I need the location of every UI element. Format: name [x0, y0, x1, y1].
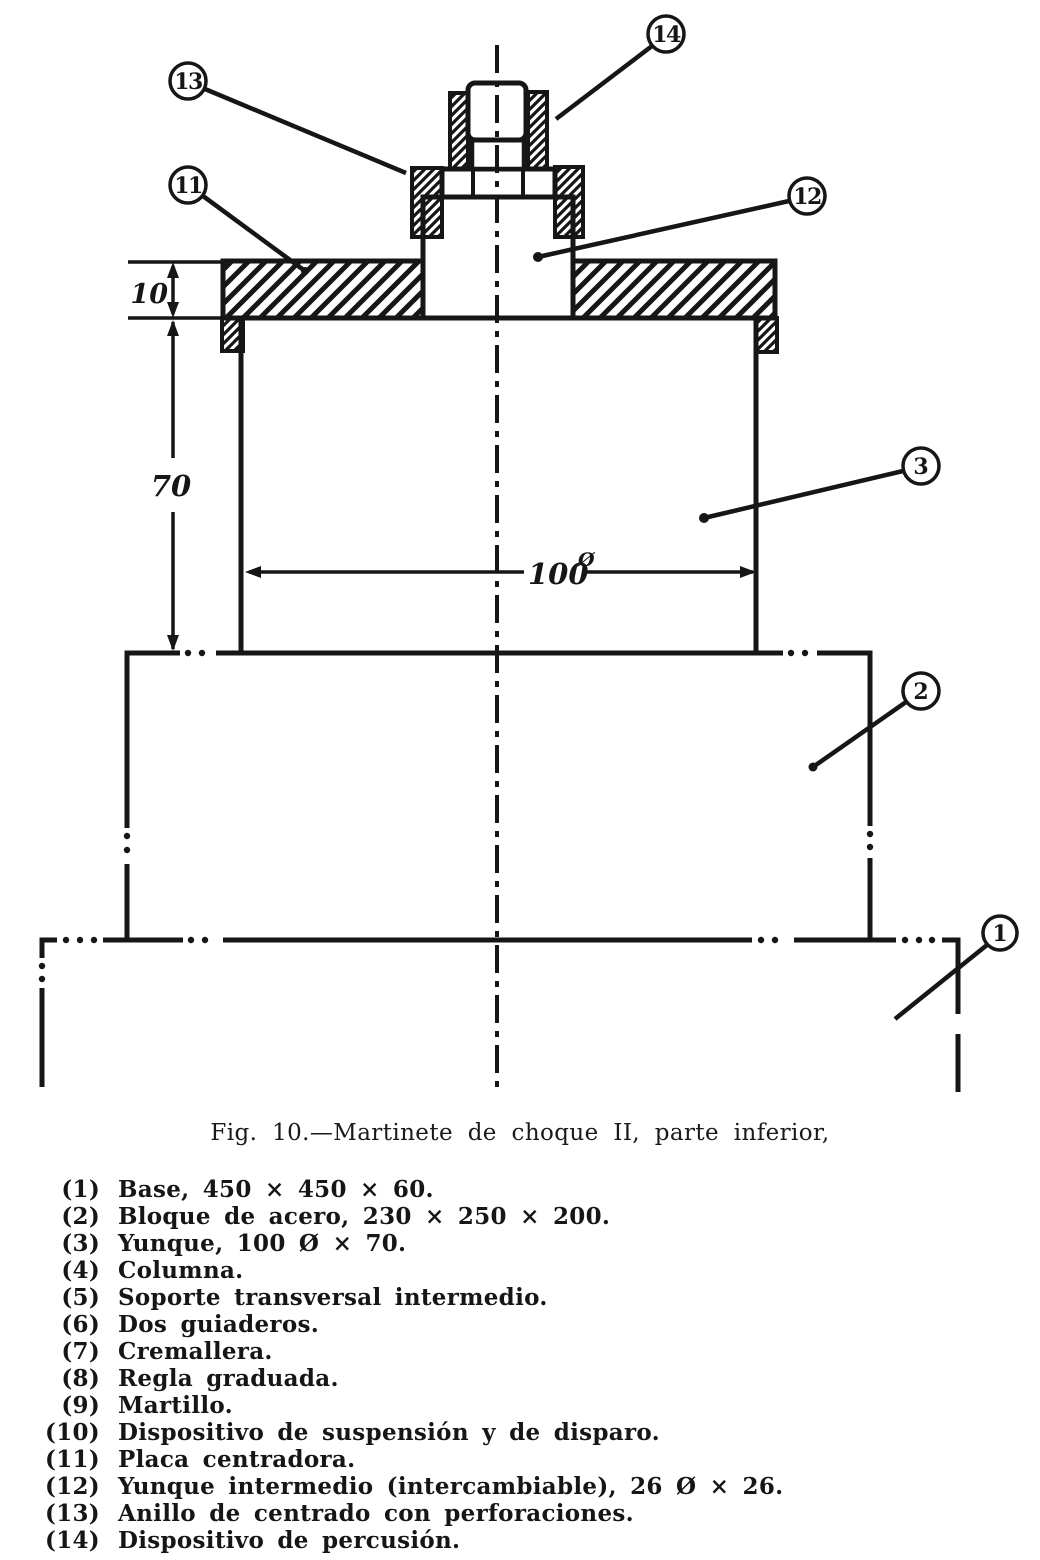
- part-label: Yunque, 100 Ø × 70.: [118, 1230, 406, 1257]
- parts-list-item: (9)Martillo.: [42, 1392, 1040, 1419]
- parts-list-item: (3)Yunque, 100 Ø × 70.: [42, 1230, 1040, 1257]
- parts-list-item: (12)Yunque intermedio (intercambiable), …: [42, 1473, 1040, 1500]
- parts-list-item: (6)Dos guiaderos.: [42, 1311, 1040, 1338]
- part-label: Bloque de acero, 230 × 250 × 200.: [118, 1203, 610, 1230]
- part-label: Yunque intermedio (intercambiable), 26 Ø…: [118, 1473, 783, 1500]
- part-number: (1): [42, 1176, 100, 1203]
- parts-list-item: (14)Dispositivo de percusión.: [42, 1527, 1040, 1554]
- parts-list-item: (4)Columna.: [42, 1257, 1040, 1284]
- part-number: (8): [42, 1365, 100, 1392]
- parts-list-item: (8)Regla graduada.: [42, 1365, 1040, 1392]
- dimension-70-label: 70: [151, 469, 191, 503]
- callout-13: 13: [170, 63, 406, 173]
- part-label: Regla graduada.: [118, 1365, 339, 1392]
- dimension-10-label: 10: [130, 279, 168, 310]
- callout-1-number: 1: [992, 921, 1007, 947]
- part-number: (5): [42, 1284, 100, 1311]
- parts-list-item: (11)Placa centradora.: [42, 1446, 1040, 1473]
- part-label: Dos guiaderos.: [118, 1311, 319, 1338]
- parts-list-item: (1)Base, 450 × 450 × 60.: [42, 1176, 1040, 1203]
- part-label: Dispositivo de suspensión y de disparo.: [118, 1419, 660, 1446]
- part-label: Placa centradora.: [118, 1446, 355, 1473]
- part-number: (3): [42, 1230, 100, 1257]
- part-label: Martillo.: [118, 1392, 233, 1419]
- parts-list-item: (13)Anillo de centrado con perforaciones…: [42, 1500, 1040, 1527]
- parts-list-item: (5)Soporte transversal intermedio.: [42, 1284, 1040, 1311]
- parts-list-item: (2)Bloque de acero, 230 × 250 × 200.: [42, 1203, 1040, 1230]
- parts-list-item: (10)Dispositivo de suspensión y de dispa…: [42, 1419, 1040, 1446]
- part-label: Cremallera.: [118, 1338, 273, 1365]
- callout-11-number: 11: [174, 173, 202, 199]
- callout-13-number: 13: [174, 69, 202, 95]
- part-label: Dispositivo de percusión.: [118, 1527, 460, 1554]
- dimension-anvil-height: 70: [151, 320, 191, 651]
- part-number: (10): [42, 1419, 100, 1446]
- part-number: (12): [42, 1473, 100, 1500]
- parts-list: (1)Base, 450 × 450 × 60. (2)Bloque de ac…: [0, 1176, 1040, 1554]
- part-number: (9): [42, 1392, 100, 1419]
- parts-list-item: (7)Cremallera.: [42, 1338, 1040, 1365]
- callout-3-number: 3: [913, 454, 928, 480]
- part-number: (13): [42, 1500, 100, 1527]
- part-number: (7): [42, 1338, 100, 1365]
- part-label: Anillo de centrado con perforaciones.: [118, 1500, 634, 1527]
- callout-2-number: 2: [913, 679, 928, 705]
- part-label: Base, 450 × 450 × 60.: [118, 1176, 434, 1203]
- base-shape: [42, 940, 958, 1092]
- part-number: (4): [42, 1257, 100, 1284]
- figure-drawing: 10 70 100 Ø 14 13: [0, 0, 1040, 1100]
- part-number: (6): [42, 1311, 100, 1338]
- callout-14: 14: [556, 16, 684, 119]
- part-label: Columna.: [118, 1257, 243, 1284]
- part-number: (11): [42, 1446, 100, 1473]
- part-number: (14): [42, 1527, 100, 1554]
- scanned-page: 10 70 100 Ø 14 13: [0, 0, 1040, 1560]
- callout-12-number: 12: [793, 184, 821, 210]
- part-label: Soporte transversal intermedio.: [118, 1284, 548, 1311]
- figure-caption: Fig. 10.—Martinete de choque II, parte i…: [0, 1120, 1040, 1146]
- part-number: (2): [42, 1203, 100, 1230]
- callout-14-number: 14: [652, 22, 681, 48]
